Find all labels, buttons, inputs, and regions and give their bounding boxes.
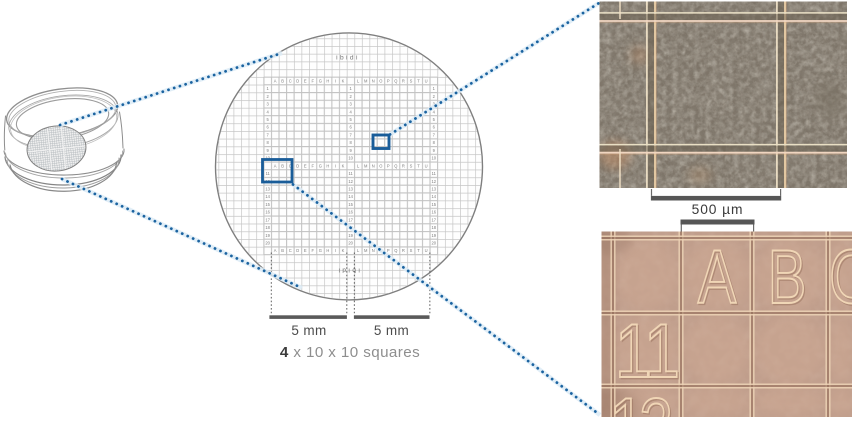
- svg-text:5 mm: 5 mm: [291, 323, 326, 338]
- svg-text:ibidi: ibidi: [336, 55, 360, 62]
- svg-text:500 µm: 500 µm: [692, 202, 744, 217]
- svg-text:C: C: [829, 235, 852, 319]
- svg-text:5 mm: 5 mm: [374, 323, 409, 338]
- svg-text:B: B: [768, 235, 807, 319]
- svg-text:A: A: [698, 235, 737, 319]
- svg-text:1: 1: [644, 308, 680, 393]
- svg-text:2: 2: [639, 383, 673, 419]
- svg-text:4 x 10 x 10 squares: 4 x 10 x 10 squares: [280, 344, 420, 361]
- svg-text:ibidi: ibidi: [336, 267, 360, 274]
